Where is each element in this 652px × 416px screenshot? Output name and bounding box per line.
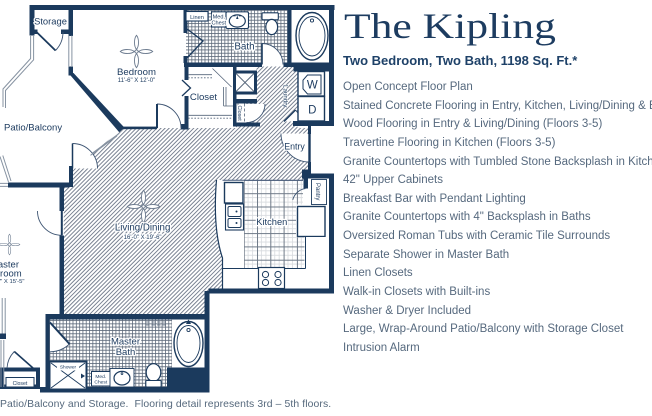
svg-text:Chest: Chest	[94, 380, 107, 386]
svg-text:Entry: Entry	[284, 142, 305, 152]
svg-text:11'-6" X 12'-0": 11'-6" X 12'-0"	[118, 78, 155, 84]
svg-text:Laundry: Laundry	[282, 85, 289, 108]
svg-text:17' X 15'-5": 17' X 15'-5"	[0, 279, 25, 285]
svg-text:Shower: Shower	[60, 365, 77, 371]
svg-text:Patio/Balcony: Patio/Balcony	[4, 122, 62, 133]
svg-text:Closet: Closet	[190, 92, 218, 103]
svg-text:Chest: Chest	[211, 21, 226, 27]
svg-text:Living/Dining: Living/Dining	[115, 223, 170, 234]
svg-text:Bath: Bath	[234, 42, 254, 53]
svg-text:Bath: Bath	[116, 347, 136, 358]
svg-text:Kitchen: Kitchen	[256, 217, 287, 227]
svg-text:Bedroom: Bedroom	[117, 67, 156, 78]
svg-text:Closet: Closet	[236, 106, 242, 122]
svg-text:Pantry: Pantry	[314, 183, 320, 200]
svg-text:16'-0" X 19'-6": 16'-0" X 19'-6"	[124, 235, 162, 241]
svg-text:D: D	[308, 104, 316, 116]
svg-text:Linen: Linen	[190, 15, 204, 21]
svg-text:Bedroom: Bedroom	[0, 269, 22, 280]
svg-text:Closet: Closet	[13, 381, 28, 387]
svg-text:Med.: Med.	[213, 14, 226, 20]
svg-text:W: W	[307, 79, 318, 91]
svg-text:Med.: Med.	[95, 374, 106, 380]
svg-text:Master: Master	[111, 336, 140, 347]
svg-text:Storage: Storage	[34, 15, 67, 26]
